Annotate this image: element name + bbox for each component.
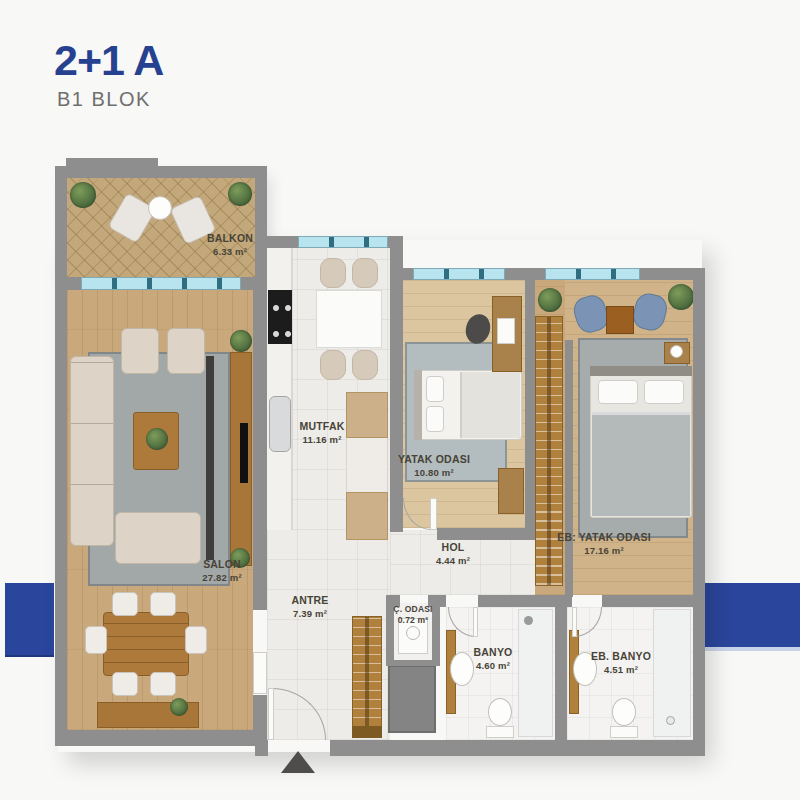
room-area: 4.51 m² <box>576 664 666 677</box>
armchair <box>121 328 159 374</box>
kitchen-cabinet <box>346 492 388 540</box>
room-label-antre: ANTRE 7.39 m² <box>265 594 355 620</box>
island-chair <box>320 350 346 380</box>
wall-segment <box>255 166 267 288</box>
room-name: MUTFAK <box>277 420 367 434</box>
wall-segment <box>390 236 403 532</box>
room-area: 17.16 m² <box>548 545 660 558</box>
master-bed-blanket <box>592 412 690 516</box>
toilet-tank <box>486 726 514 738</box>
master-bed-headboard <box>590 366 692 376</box>
window-kitchen <box>298 236 388 248</box>
island-chair <box>352 258 378 288</box>
plant <box>70 182 96 208</box>
nightstand <box>498 468 524 514</box>
room-label-yatak-odasi: YATAK ODASI 10.80 m² <box>382 453 486 479</box>
plant <box>228 182 252 206</box>
window-master-bedroom <box>545 268 640 280</box>
door-leaf <box>572 607 577 637</box>
entry-wardrobe <box>352 616 382 728</box>
room-area: 10.80 m² <box>382 467 486 480</box>
island-table <box>316 290 382 348</box>
armchair <box>167 328 205 374</box>
room-label-hol: HOL 4.44 m² <box>408 541 498 567</box>
dining-chair <box>185 626 207 654</box>
room-name: EB. BANYO <box>576 650 666 664</box>
plant <box>668 284 694 310</box>
room-label-banyo: BANYO 4.60 m² <box>448 646 538 672</box>
room-label-salon: SALON 27.82 m² <box>178 558 266 584</box>
pillow <box>598 380 638 404</box>
room-area: 4.60 m² <box>448 660 538 673</box>
room-name: ANTRE <box>265 594 355 608</box>
tv <box>240 423 248 483</box>
toilet-tank <box>610 726 638 738</box>
window-bedroom <box>413 268 505 280</box>
tv-bench <box>206 356 214 560</box>
room-area: 27.82 m² <box>178 572 266 585</box>
room-name: BANYO <box>448 646 538 660</box>
left-blue-band <box>5 583 54 657</box>
wall-segment <box>525 280 535 540</box>
shower <box>518 609 553 737</box>
room-area: 11.16 m² <box>277 434 367 447</box>
balcony-table <box>148 196 172 220</box>
shower-drain <box>666 716 675 725</box>
shower-head <box>524 616 533 625</box>
plant <box>538 288 562 312</box>
dining-chair <box>85 626 107 654</box>
room-name: EB: YATAK ODASI <box>548 531 660 545</box>
room-name: SALON <box>178 558 266 572</box>
room-label-balkon: BALKON 6.33 m² <box>185 232 275 258</box>
room-label-eb-yatak-odasi: EB: YATAK ODASI 17.16 m² <box>548 531 660 557</box>
wall-segment <box>693 268 705 746</box>
floor-plan-canvas: 2+1 A B1 BLOK <box>0 0 800 800</box>
wall-segment <box>255 740 268 756</box>
door-leaf <box>253 652 267 694</box>
entrance-door-leaf <box>268 688 274 740</box>
wall-segment <box>55 166 267 178</box>
island-chair <box>352 350 378 380</box>
pillow <box>644 380 684 404</box>
room-label-eb-banyo: EB. BANYO 4.51 m² <box>576 650 666 676</box>
room-label-c-odasi: Ç. ODASI 0.72 m² <box>384 604 442 626</box>
sofa <box>70 356 114 546</box>
wall-segment <box>386 660 440 666</box>
window-balcony-salon <box>81 277 241 290</box>
plan-title: 2+1 A <box>54 36 163 85</box>
loveseat <box>115 512 201 564</box>
desk-paper <box>497 318 515 344</box>
wall-segment <box>437 528 535 540</box>
lamp <box>670 345 683 358</box>
plant <box>170 698 188 716</box>
dining-chair <box>112 672 138 696</box>
bed-blanket <box>460 372 520 438</box>
dining-chair <box>150 672 176 696</box>
side-table <box>606 306 634 334</box>
room-area: 0.72 m² <box>384 615 442 626</box>
room-name: BALKON <box>185 232 275 246</box>
plant <box>146 428 168 450</box>
dining-table <box>103 612 189 676</box>
pillow <box>426 376 444 402</box>
dining-chair <box>150 592 176 616</box>
plan-subtitle: B1 BLOK <box>57 88 151 111</box>
room-area: 6.33 m² <box>185 246 275 259</box>
wall-segment <box>55 166 67 746</box>
wall-segment <box>55 730 267 746</box>
room-name: Ç. ODASI <box>384 604 442 615</box>
room-area: 7.39 m² <box>265 608 355 621</box>
cooktop <box>268 290 292 344</box>
entry-wardrobe-base <box>352 726 382 738</box>
bed-headboard <box>414 370 422 440</box>
washer-drum <box>406 626 420 640</box>
wall-segment <box>602 595 705 607</box>
wall-segment <box>555 595 567 745</box>
door-leaf <box>473 607 478 637</box>
room-label-mutfak: MUTFAK 11.16 m² <box>277 420 367 446</box>
pillow <box>426 406 444 432</box>
plant <box>230 330 252 352</box>
door-leaf <box>430 498 437 530</box>
wall-segment <box>330 740 705 756</box>
room-name: YATAK ODASI <box>382 453 486 467</box>
entrance-arrow <box>281 751 315 773</box>
dining-chair <box>112 592 138 616</box>
room-name: HOL <box>408 541 498 555</box>
toilet <box>488 698 512 726</box>
wall-segment <box>66 158 158 166</box>
toilet <box>612 698 636 726</box>
right-blue-band <box>702 583 800 651</box>
wall-segment <box>565 340 573 597</box>
island-chair <box>320 258 346 288</box>
room-area: 4.44 m² <box>408 555 498 568</box>
shaft <box>388 665 436 733</box>
